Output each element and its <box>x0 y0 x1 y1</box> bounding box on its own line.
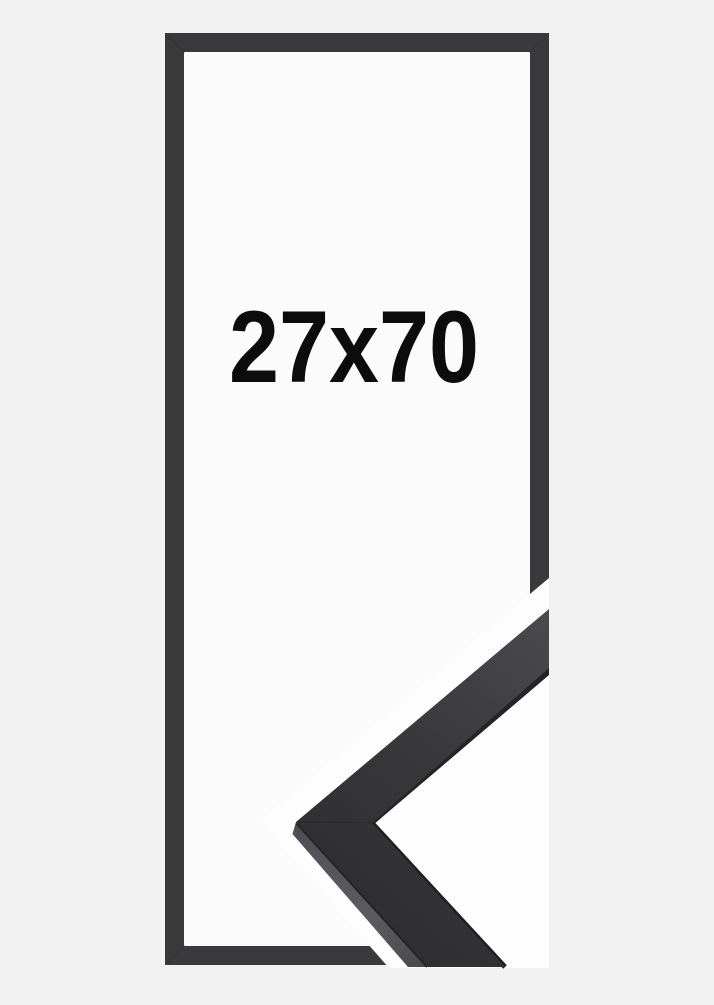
svg-text:27x70: 27x70 <box>229 290 479 404</box>
